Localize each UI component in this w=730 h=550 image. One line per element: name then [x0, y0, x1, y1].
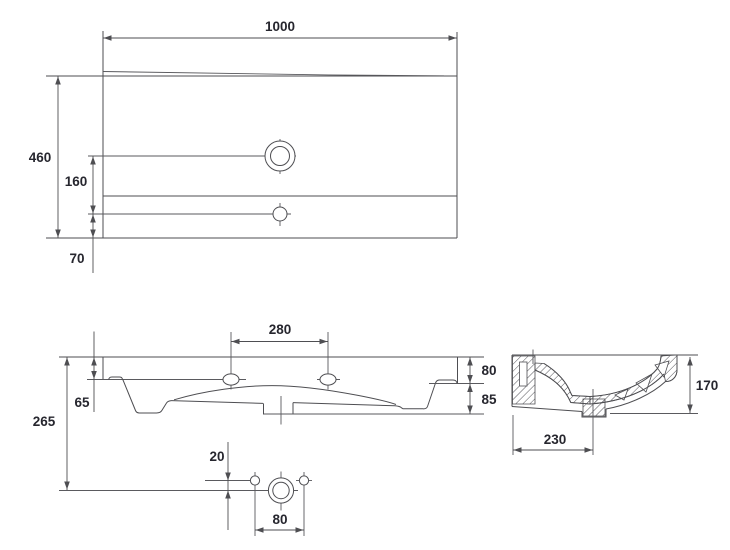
dim-tap-spacing: 280: [231, 322, 328, 344]
dim-drain-offset: 230: [513, 432, 593, 453]
fixing-hole-left: [250, 476, 259, 485]
dim-right-rim: 80 85: [467, 357, 497, 414]
dim-label-hole-spacing: 80: [272, 512, 287, 527]
faucet-hole-inner: [271, 147, 290, 166]
dim-section-height: 170: [687, 357, 718, 413]
section-fixing-channel-void: [520, 362, 528, 386]
overflow-hole: [273, 207, 287, 221]
dim-label-right-bowl: 85: [481, 392, 497, 407]
section-bowl-inner-surface: [544, 356, 661, 397]
technical-drawing: 1000 460 160 70: [0, 0, 730, 550]
dim-label-tap-hole-offset: 160: [65, 174, 88, 189]
dim-label-hole-offset: 20: [209, 449, 224, 464]
fixing-hole-right: [299, 476, 308, 485]
plan-view: 1000 460 160 70: [29, 19, 457, 273]
dim-label-plan-depth: 460: [29, 150, 52, 165]
front-left-bowl-contour: [123, 380, 172, 414]
dim-label-total-height: 265: [33, 414, 56, 429]
section-bowl-wall-hatch: [535, 363, 590, 404]
dim-left-rim: 65: [74, 332, 96, 413]
tap-hole-right: [320, 374, 336, 385]
dim-tap-hole-offset: 160: [65, 156, 96, 214]
dim-plan-width: 1000: [103, 19, 457, 41]
front-view: 280 65 265 80 85: [33, 322, 497, 491]
drain-hole-inner: [273, 482, 289, 498]
dim-total-height: 265: [33, 357, 70, 490]
dim-label-section-height: 170: [696, 378, 719, 393]
section-bottom: [512, 407, 582, 412]
plan-back-rim-curve: [103, 72, 444, 76]
dim-plan-depth: 460: [29, 76, 61, 238]
dim-label-right-rim: 80: [481, 363, 496, 378]
tap-hole-left: [223, 374, 239, 385]
dim-hole-spacing: 80: [255, 512, 304, 533]
dim-label-back-offset: 70: [69, 251, 84, 266]
dim-label-left-rim: 65: [74, 395, 90, 410]
dim-back-offset: 70: [69, 214, 95, 273]
dim-label-tap-spacing: 280: [269, 322, 292, 337]
front-lower-contour-left: [172, 401, 264, 404]
front-drain-stub: [264, 403, 294, 414]
drain-detail-view: 20 80: [205, 442, 312, 536]
dim-label-drain-offset: 230: [544, 432, 567, 447]
dim-hole-offset: 20: [209, 442, 230, 530]
drawing-sheet: 1000 460 160 70: [0, 0, 730, 550]
section-view: 170 230: [512, 350, 718, 456]
dim-label-plan-width: 1000: [265, 19, 295, 34]
